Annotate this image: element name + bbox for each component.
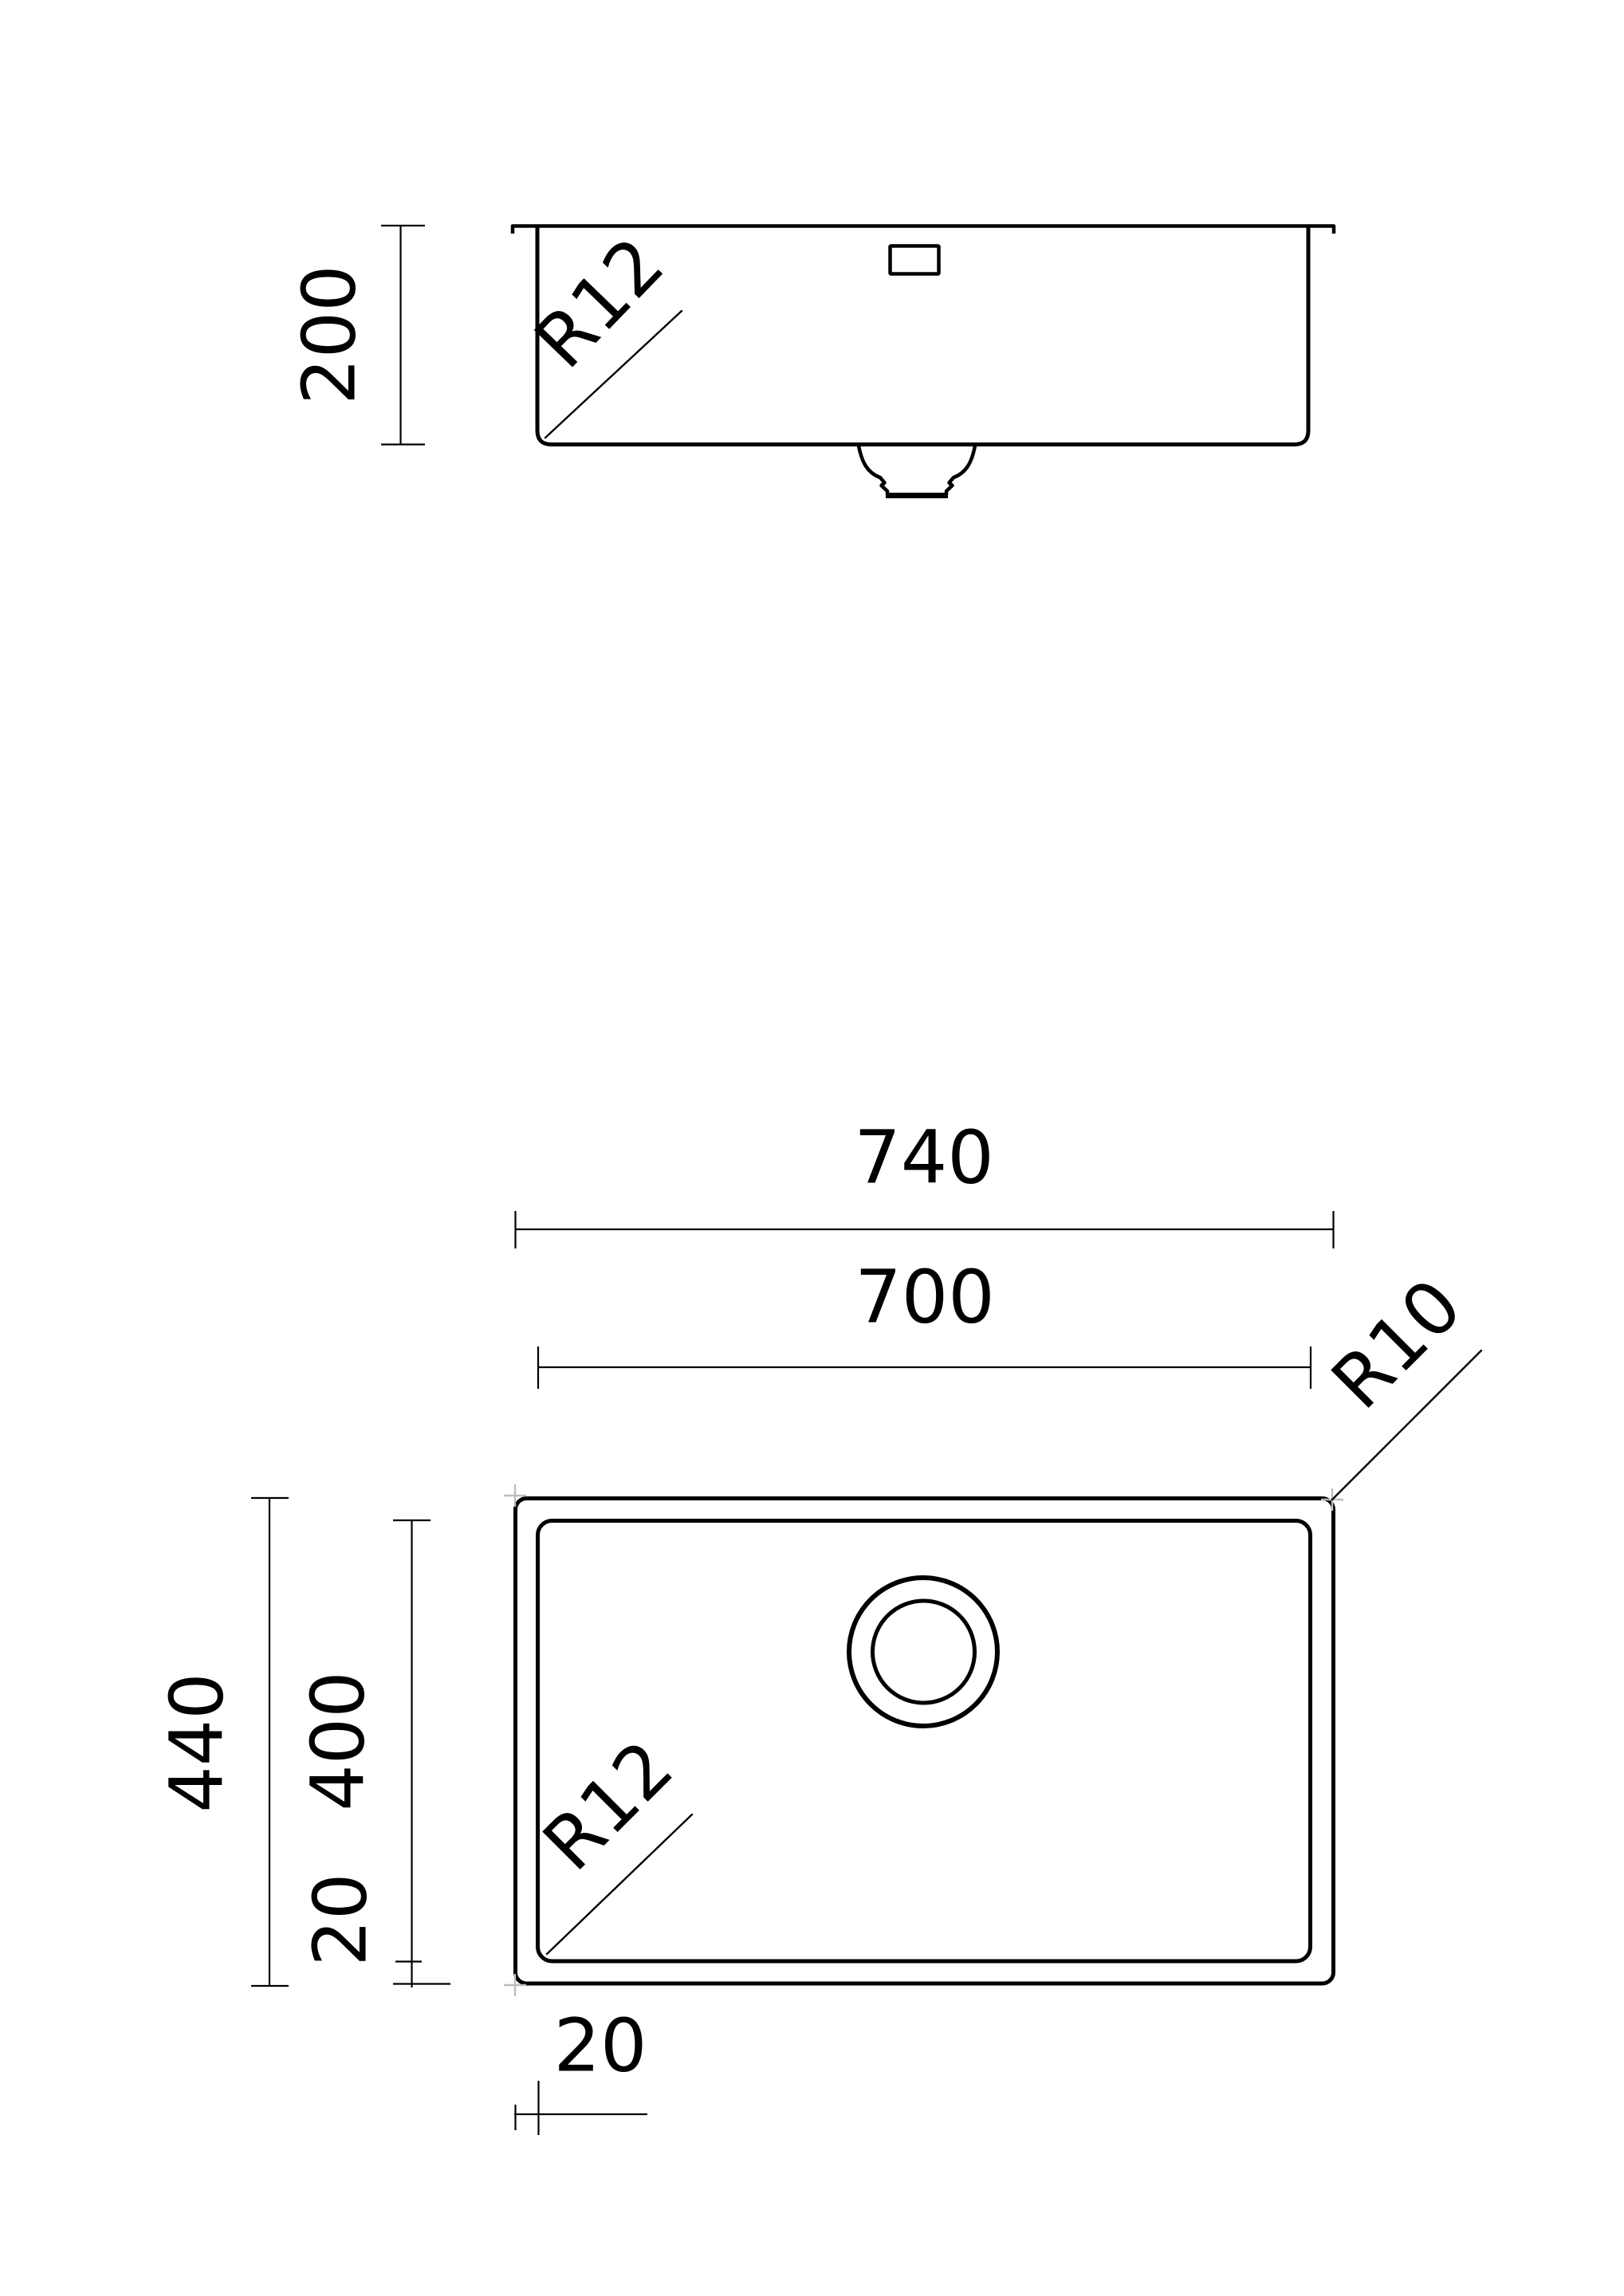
side-corner-radius-callout: R12	[519, 222, 682, 438]
outer-height-dimension: 440	[155, 1498, 289, 1986]
outer-width-label: 740	[854, 1115, 994, 1201]
sink-technical-drawing: 200 R12	[0, 0, 1624, 2296]
setout-mark-top-left	[504, 1484, 526, 1507]
drain-fitting-left-profile	[859, 446, 887, 495]
side-rim-line	[513, 226, 1334, 234]
side-view: 200 R12	[287, 222, 1335, 496]
inner-corner-radius-label: R12	[527, 1724, 690, 1887]
drain-plan	[849, 1578, 997, 1726]
overflow-hole	[891, 246, 939, 274]
outer-corner-radius-label: R10	[1315, 1263, 1478, 1425]
inner-height-dimension: 400 20	[296, 1520, 451, 1987]
inner-height-label: 400	[296, 1671, 381, 1811]
inner-corner-radius-callout: R12	[527, 1724, 692, 1954]
outer-corner-radius-callout: R10	[1315, 1263, 1481, 1500]
bottom-wall-dimension: 20	[514, 2003, 647, 2136]
depth-dim-label: 200	[287, 265, 372, 405]
left-wall-thickness-label: 20	[298, 1873, 383, 1966]
depth-dimension: 200	[287, 226, 426, 445]
outer-height-label: 440	[155, 1673, 240, 1813]
drain-fitting-right-profile	[946, 446, 975, 495]
side-corner-radius-label: R12	[519, 222, 681, 385]
drain-inner-circle	[873, 1601, 975, 1703]
plan-view: 740 700 440 400	[155, 1115, 1482, 2136]
plan-inner-rect	[538, 1521, 1311, 1962]
setout-mark-bottom-left	[504, 1974, 526, 1996]
inner-width-dimension: 700	[538, 1255, 1311, 1390]
drain-fitting	[859, 446, 975, 496]
inner-width-label: 700	[855, 1255, 995, 1340]
outer-width-dimension: 740	[516, 1115, 1334, 1249]
bottom-wall-thickness-label: 20	[553, 2003, 647, 2089]
drawing-sheet: 200 R12	[0, 0, 1624, 2296]
